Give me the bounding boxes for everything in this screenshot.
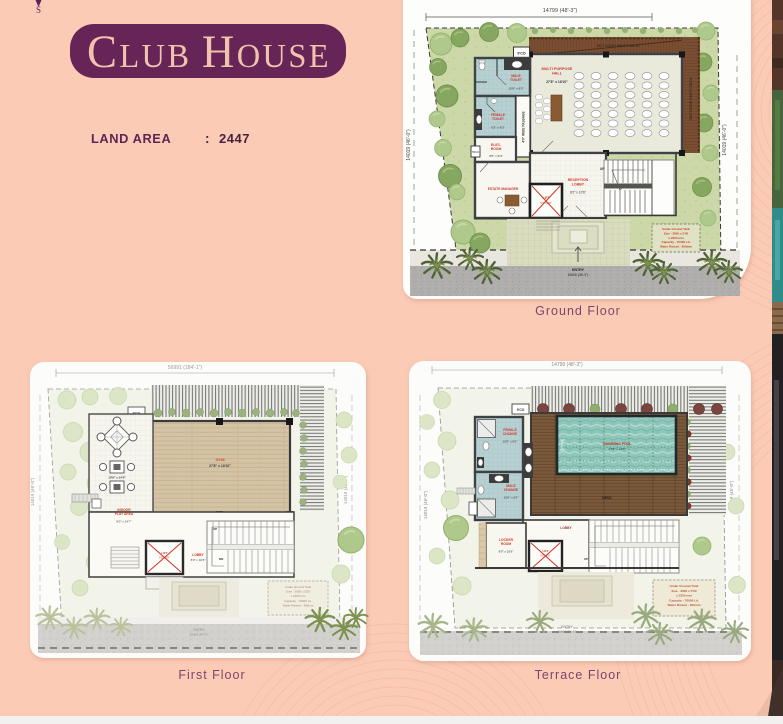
- svg-text:OUT DOOR PARTY DECK: OUT DOOR PARTY DECK: [597, 44, 640, 48]
- svg-text:14019 (46'-0"): 14019 (46'-0"): [423, 490, 428, 519]
- svg-text:DN: DN: [219, 557, 223, 561]
- svg-text:5'0"x5'0": 5'0"x5'0": [540, 554, 550, 558]
- svg-text:Terrace Floor: Terrace Floor: [535, 668, 622, 682]
- svg-text:9'CO: 9'CO: [517, 52, 525, 56]
- svg-text:UP: UP: [584, 557, 588, 561]
- svg-text:27'8" x 14'0": 27'8" x 14'0": [609, 447, 626, 451]
- svg-text:5'0"x5'0": 5'0"x5'0": [540, 201, 551, 205]
- svg-text:5'0"x5'0": 5'0"x5'0": [159, 556, 170, 560]
- svg-text:6'5" x 6'4": 6'5" x 6'4": [489, 154, 503, 158]
- svg-text:DECK: DECK: [602, 496, 612, 500]
- svg-text:ESTATE MANAGER: ESTATE MANAGER: [488, 187, 519, 191]
- svg-text:15000 (49'-3"): 15000 (49'-3"): [190, 633, 209, 637]
- svg-text:56991 (184'-1"): 56991 (184'-1"): [168, 365, 202, 371]
- svg-text:ENTRY: ENTRY: [193, 628, 205, 632]
- svg-text:2447: 2447: [219, 131, 250, 146]
- svg-text:14019 (46'-0"): 14019 (46'-0"): [722, 124, 728, 156]
- svg-text:8'0" x 10'6": 8'0" x 10'6": [499, 550, 514, 554]
- svg-text:10'6" x 6'5": 10'6" x 6'5": [508, 87, 523, 91]
- svg-text:4'0" WIDE PASSAGE: 4'0" WIDE PASSAGE: [522, 111, 526, 142]
- svg-text:S: S: [36, 5, 41, 15]
- svg-text:14799 (48'-3"): 14799 (48'-3"): [551, 362, 583, 368]
- svg-text:GYM: GYM: [215, 457, 225, 462]
- svg-text:6'3" x 8'3": 6'3" x 8'3": [491, 126, 505, 130]
- svg-text:ENTRY: ENTRY: [572, 268, 585, 272]
- svg-text:UP: UP: [213, 527, 217, 531]
- svg-text:8'0" x 14'7": 8'0" x 14'7": [116, 520, 131, 524]
- svg-text:LAND AREA: LAND AREA: [91, 131, 171, 146]
- svg-text:14019 (46'-0"): 14019 (46'-0"): [406, 129, 412, 161]
- svg-text:27'8" x 18'10": 27'8" x 18'10": [209, 464, 231, 468]
- svg-text:27'8" x 18'10": 27'8" x 18'10": [546, 80, 568, 84]
- svg-text:9'CO: 9'CO: [517, 408, 525, 412]
- svg-text:10'6" x 6'5": 10'6" x 6'5": [504, 496, 519, 500]
- svg-text:TRCO: TRCO: [472, 150, 479, 154]
- svg-text:15000 (49'-3"): 15000 (49'-3"): [568, 273, 589, 277]
- svg-text:FEMALECHANGE: FEMALECHANGE: [503, 428, 518, 436]
- svg-text::: :: [205, 131, 210, 146]
- svg-text:LIFT: LIFT: [543, 196, 550, 200]
- svg-text:8'2" x 10'6": 8'2" x 10'6": [570, 191, 586, 195]
- svg-text:14019 (46'-0"): 14019 (46'-0"): [30, 477, 35, 506]
- svg-text:8'0" x 10'6": 8'0" x 10'6": [191, 558, 206, 562]
- svg-text:First Floor: First Floor: [178, 668, 245, 682]
- svg-text:SWIMMING POOL: SWIMMING POOL: [603, 442, 632, 446]
- svg-text:OUT DOOR PARTY DECK: OUT DOOR PARTY DECK: [689, 77, 693, 120]
- svg-text:LOBBY: LOBBY: [192, 553, 204, 557]
- svg-text:LIFT: LIFT: [542, 549, 548, 553]
- svg-text:ENTRY: ENTRY: [561, 625, 573, 629]
- svg-text:LOBBY: LOBBY: [560, 526, 572, 530]
- svg-text:10'6" x 14'0": 10'6" x 14'0": [108, 476, 126, 480]
- svg-text:LIFT: LIFT: [161, 551, 167, 555]
- svg-text:14799 (48'-3"): 14799 (48'-3"): [543, 8, 578, 14]
- svg-text:15000 (49'-3"): 15000 (49'-3"): [558, 630, 577, 634]
- svg-text:Ground Floor: Ground Floor: [535, 304, 621, 318]
- svg-text:10'0" x 9'0": 10'0" x 9'0": [503, 440, 518, 444]
- svg-text:ELEC.ROOM: ELEC.ROOM: [491, 143, 502, 151]
- svg-text:FEMALETOILET: FEMALETOILET: [491, 113, 506, 121]
